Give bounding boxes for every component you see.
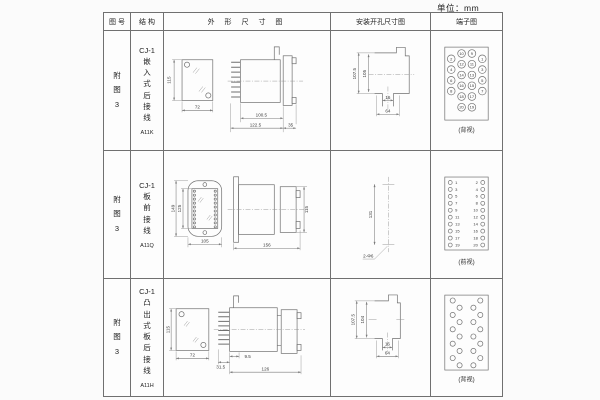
view-label: (背视) (458, 375, 474, 383)
dimension-table: 图 号 结 构 外 形 尺 寸 图 安装开孔尺寸图 端子图 附 图 3 CJ-1… (103, 12, 503, 397)
dim-front-depth: 31.5 (216, 365, 225, 370)
install-drawing-a11k: 107.5 105 16 64 (331, 31, 430, 150)
svg-text:9: 9 (471, 51, 474, 56)
dim-height: 115 (165, 325, 170, 333)
cutout-outline (375, 47, 410, 106)
svg-text:7: 7 (455, 201, 458, 206)
hatch-marks (198, 197, 212, 220)
header-fig-number: 图 号 (104, 13, 131, 31)
extension-lines (357, 53, 400, 116)
structure-cell-a11q: CJ-1 板 前 接 线 A11Q (131, 151, 164, 279)
structure-cell-a11h: CJ-1 凸 出 式 板 后 接 线 A11H (131, 279, 164, 397)
fig-cell-a11k: 附 图 3 (104, 31, 131, 151)
fig-label: 附 图 3 (113, 69, 121, 112)
dim-width: 72 (190, 353, 196, 358)
dim-height-side: 115 (304, 205, 309, 213)
dim-hole-spacing: 131 (368, 210, 373, 218)
fig-label: 附 图 3 (113, 316, 121, 359)
svg-text:9: 9 (455, 208, 458, 213)
dim-flange-depth: 35 (288, 122, 294, 127)
install-cell-a11k: 107.5 105 16 64 (331, 31, 431, 151)
svg-text:16: 16 (473, 228, 478, 233)
svg-text:13: 13 (470, 72, 475, 77)
svg-text:3: 3 (455, 187, 458, 192)
svg-text:1: 1 (481, 56, 484, 61)
outline-cell-a11q: 149 125 105 156 115 (164, 151, 331, 279)
terminal-drawing-a11k: 2468101214161820911131517191357 (背视) (431, 31, 502, 150)
structure-label: CJ-1 板 前 接 线 (139, 180, 155, 236)
svg-text:18: 18 (473, 235, 478, 240)
install-drawing-a11h: 107.5 104 16 64 (331, 279, 430, 396)
svg-text:2: 2 (476, 180, 479, 185)
svg-text:8: 8 (476, 201, 479, 206)
dim-h-outer: 64 (385, 109, 391, 114)
svg-text:5: 5 (455, 194, 458, 199)
front-view (188, 181, 222, 237)
install-cell-a11h: 107.5 104 16 64 (331, 279, 431, 397)
dim-h-outer: 64 (385, 351, 391, 356)
terminal-cell-a11h: (背视) (431, 279, 503, 397)
terminal-cell-a11k: 2468101214161820911131517191357 (背视) (431, 31, 503, 151)
structure-label: CJ-1 嵌 入 式 后 接 线 (139, 45, 155, 124)
dim-depth-total: 122.5 (250, 122, 262, 127)
outline-drawing-a11h: 115 72 9.5 31.5 126 (164, 279, 330, 396)
structure-cell-a11k: CJ-1 嵌 入 式 后 接 线 A11K (131, 31, 164, 151)
front-view (176, 309, 209, 351)
dim-v-inner: 104 (360, 315, 365, 323)
extension-lines (355, 301, 405, 358)
terminal-grid-a11h (450, 298, 483, 368)
outline-cell-a11k: 115 72 100.5 122.5 35 (164, 31, 331, 151)
svg-text:4: 4 (476, 187, 479, 192)
dim-v-inner: 105 (362, 69, 367, 77)
svg-text:19: 19 (470, 105, 475, 110)
dim-height-outer: 149 (170, 204, 175, 212)
terminal-grid-a11q: 1357911131517192468101214161820 (448, 180, 484, 248)
svg-text:18: 18 (459, 94, 464, 99)
outline-cell-a11h: 115 72 9.5 31.5 126 (164, 279, 331, 397)
svg-text:20: 20 (473, 242, 478, 247)
terminal-grid-a11k: 2468101214161820911131517191357 (447, 50, 486, 111)
svg-text:11: 11 (455, 215, 460, 220)
svg-text:11: 11 (470, 62, 475, 67)
svg-text:10: 10 (473, 208, 478, 213)
dim-depth: 126 (262, 367, 270, 372)
outline-drawing-a11k: 115 72 100.5 122.5 35 (164, 31, 330, 150)
outline-drawing-a11q: 149 125 105 156 115 (164, 151, 330, 278)
svg-text:4: 4 (450, 67, 453, 72)
view-label: (背视) (458, 126, 474, 134)
svg-text:14: 14 (473, 222, 478, 227)
svg-text:16: 16 (459, 83, 464, 88)
svg-text:12: 12 (473, 215, 478, 220)
fig-label: 附 图 3 (113, 193, 121, 236)
header-mounting-holes: 安装开孔尺寸图 (331, 13, 431, 31)
dim-width: 105 (201, 239, 209, 244)
header-terminal-diagram: 端子图 (431, 13, 503, 31)
terminal-drawing-a11q: 1357911131517192468101214161820 (前视) (431, 151, 502, 278)
terminal-drawing-a11h: (背视) (431, 279, 502, 396)
header-structure: 结 构 (131, 13, 164, 31)
svg-text:7: 7 (481, 89, 484, 94)
dim-depth: 156 (263, 243, 271, 248)
fig-cell-a11q: 附 图 3 (104, 151, 131, 279)
svg-text:12: 12 (459, 62, 464, 67)
svg-text:3: 3 (481, 67, 484, 72)
dim-height: 115 (167, 76, 172, 84)
svg-text:14: 14 (459, 72, 464, 77)
extension-lines (172, 60, 213, 113)
svg-text:19: 19 (455, 242, 460, 247)
dim-v-outer: 107.5 (350, 314, 355, 326)
extension-lines (231, 103, 296, 132)
svg-text:2: 2 (450, 56, 453, 61)
svg-text:6: 6 (476, 194, 479, 199)
dim-v-outer: 107.5 (352, 68, 357, 80)
svg-text:17: 17 (470, 94, 475, 99)
model-code: A11Q (140, 243, 154, 249)
dim-width: 72 (195, 105, 201, 110)
install-cell-a11q: 131 2-Φ6 (331, 151, 431, 279)
hole-spec-label: 2-Φ6 (363, 254, 374, 259)
structure-label: CJ-1 凸 出 式 板 后 接 线 (139, 286, 155, 376)
front-view (182, 60, 213, 101)
center-line (369, 75, 415, 111)
hatch-marks (193, 68, 205, 93)
svg-text:20: 20 (459, 105, 464, 110)
svg-text:17: 17 (455, 235, 460, 240)
terminal-block (445, 295, 488, 370)
hatch-marks (184, 321, 198, 342)
svg-text:1: 1 (455, 180, 458, 185)
side-view (228, 47, 303, 106)
terminal-cell-a11q: 1357911131517192468101214161820 (前视) (431, 151, 503, 279)
dim-h-inner: 16 (385, 95, 391, 100)
view-label: (前视) (458, 258, 474, 266)
svg-text:13: 13 (455, 222, 460, 227)
dim-depth-body: 100.5 (256, 113, 268, 118)
install-drawing-a11q: 131 2-Φ6 (331, 151, 430, 278)
svg-text:8: 8 (450, 89, 453, 94)
model-code: A11K (140, 130, 153, 136)
svg-text:6: 6 (450, 78, 453, 83)
dim-pin-depth: 9.5 (245, 354, 252, 359)
side-view (214, 296, 305, 354)
svg-text:15: 15 (470, 83, 475, 88)
model-code: A11H (140, 383, 153, 389)
svg-text:15: 15 (455, 228, 460, 233)
fig-cell-a11h: 附 图 3 (104, 279, 131, 397)
svg-text:5: 5 (481, 78, 484, 83)
dim-height-inner: 125 (177, 204, 182, 212)
terminal-strips (193, 190, 216, 228)
svg-text:10: 10 (459, 51, 464, 56)
dim-h-inner: 16 (385, 342, 391, 347)
header-outline-dimensions: 外 形 尺 寸 图 (164, 13, 331, 31)
